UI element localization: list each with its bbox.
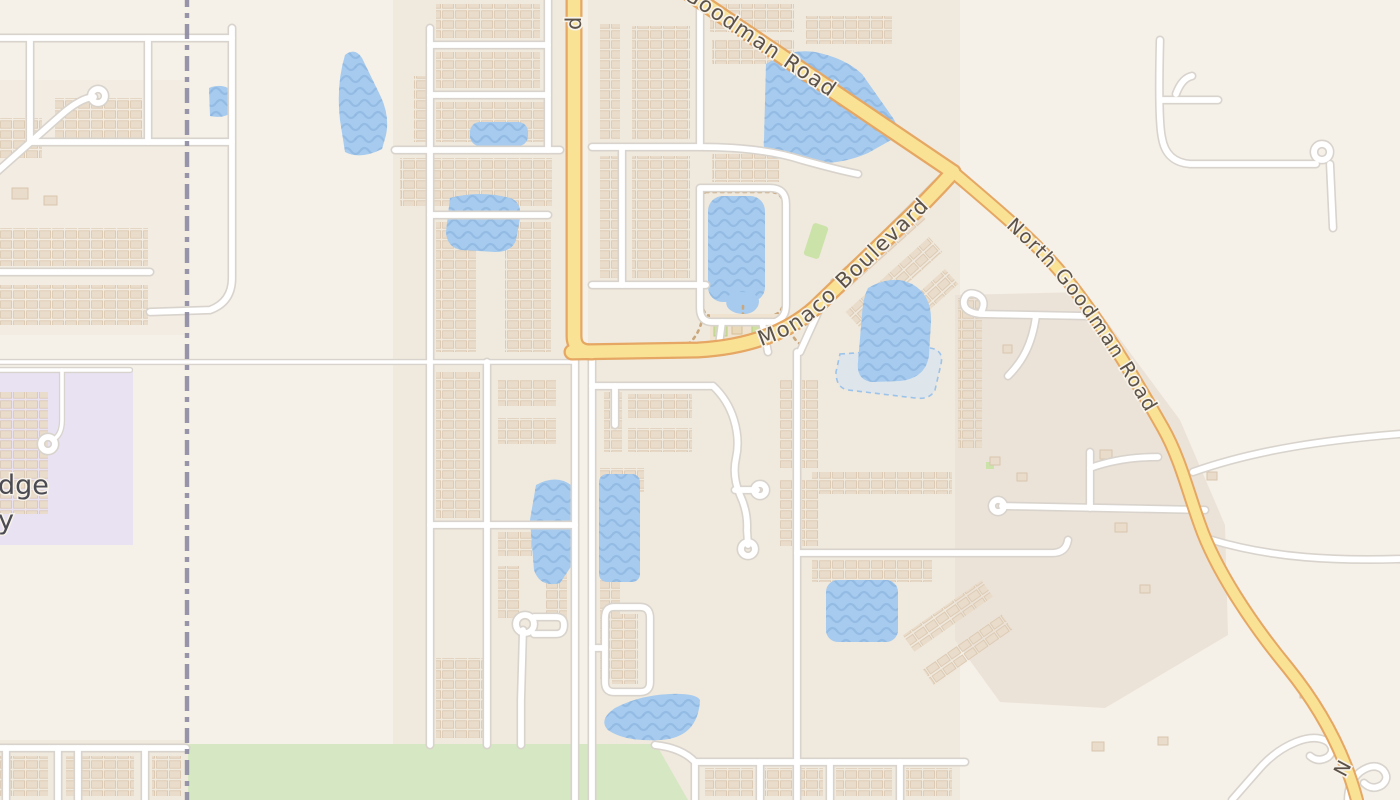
- map-viewport[interactable]: Goodman Road North Goodman Road Monaco B…: [0, 0, 1400, 800]
- pond: [446, 194, 520, 252]
- place-label-fragment-line2: y: [0, 505, 14, 536]
- pond: [708, 196, 765, 314]
- pond: [470, 122, 528, 146]
- park-area: [188, 744, 688, 800]
- map-canvas[interactable]: Goodman Road North Goodman Road Monaco B…: [0, 0, 1400, 800]
- pond: [599, 474, 640, 582]
- pond: [826, 580, 898, 642]
- pond: [858, 280, 931, 382]
- place-label-fragment-line1: dge: [0, 470, 49, 501]
- road-label-fragment-top: d: [562, 15, 586, 30]
